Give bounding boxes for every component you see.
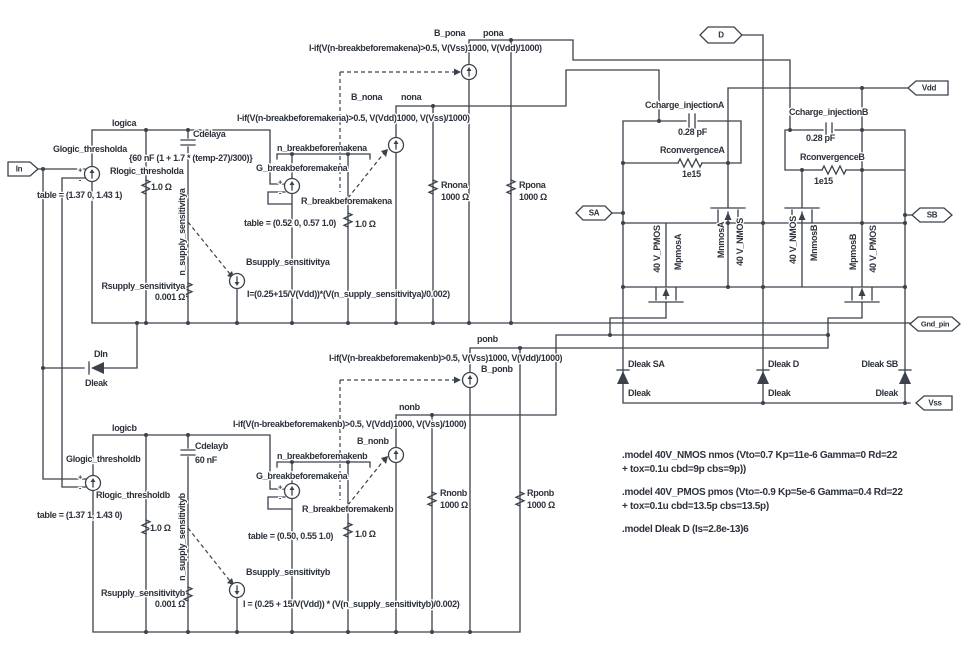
- bsupply-a-label: Bsupply_sensitivitya: [246, 257, 331, 267]
- dleak-d-model: Dleak: [768, 388, 792, 398]
- dleak-sa-label: Dleak SA: [628, 359, 665, 369]
- cdelay-b-label: Cdelayb: [195, 441, 229, 451]
- rbreak-a-label: R_breakbeforemakena: [301, 196, 393, 206]
- bsupply-a-formula: I=(0.25+15/V(Vdd))*(V(n_supply_sensitivi…: [247, 289, 450, 299]
- model-pmos-line1: .model 40V_PMOS pmos (Vto=-0.9 Kp=5e-6 G…: [622, 487, 903, 498]
- schematic-page: In D Vdd SA SB Gnd_pin Vss logica Glogic…: [0, 0, 962, 651]
- rbreak-a-value: 1.0 Ω: [355, 219, 376, 229]
- din-model: Dleak: [85, 378, 109, 388]
- bpon-a-formula: I-if(V(n-breakbeforemakena)>0.5, V(Vss)1…: [309, 43, 542, 53]
- port-sa-label: SA: [589, 209, 600, 218]
- rpon-a-value: 1000 Ω: [519, 192, 547, 202]
- dleak-sa-model: Dleak: [628, 388, 652, 398]
- mnmos-b-name: MnmosB: [809, 224, 819, 261]
- rconv-b-label: RconvergenceB: [800, 152, 865, 162]
- ccharge-a-value: 0.28 pF: [678, 127, 708, 137]
- ccharge-b-label: Ccharge_injectionB: [789, 107, 869, 117]
- bpon-b-label: B_ponb: [481, 364, 513, 374]
- bnon-b-formula: I-if(V(n-breakbeforemakenb)>0.5, V(Vdd)1…: [233, 419, 467, 429]
- cdelay-a-value: {60 nF (1 + 1.7 * (temp-27)/300)}: [129, 153, 253, 163]
- rnon-b-value: 1000 Ω: [440, 500, 468, 510]
- ccharge-a-label: Ccharge_injectionA: [645, 100, 725, 110]
- gbreak-b-label: G_breakbeforemakena: [256, 471, 349, 481]
- mnmos-a-name: MnmosA: [716, 221, 726, 258]
- bnon-a-label: B_nona: [351, 92, 383, 102]
- net-nsupply-a: n_supply_sensitivitya: [177, 187, 187, 276]
- wire-network: [38, 35, 912, 632]
- net-pona: pona: [483, 28, 505, 38]
- rbreak-b-value: 1.0 Ω: [355, 529, 376, 539]
- bsupply-b-formula: I = (0.25 + 15/V(Vdd)) * (V(n_supply_sen…: [243, 599, 460, 609]
- gbreak-a-table: table = (0.52 0, 0.57 1.0): [244, 218, 336, 228]
- rpon-b-label: Rponb: [527, 488, 555, 498]
- gbreak-a-minus: -: [279, 189, 282, 198]
- rconv-a-value: 1e15: [682, 169, 701, 179]
- rsupply-b-value: 0.001 Ω: [155, 599, 185, 609]
- bnon-b-label: B_nonb: [357, 436, 389, 446]
- glogic-b-label: Glogic_thresholdb: [66, 454, 141, 464]
- model-nmos-line1: .model 40V_NMOS nmos (Vto=0.7 Kp=11e-6 G…: [622, 450, 898, 461]
- rsupply-a-label: Rsupply_sensitivitya: [101, 281, 186, 291]
- gbreak-b-plus: +: [278, 483, 283, 492]
- glogic-b-plus: +: [78, 473, 83, 482]
- rconv-a-label: RconvergenceA: [660, 145, 725, 155]
- glogic-a-label: Glogic_thresholda: [53, 144, 128, 154]
- mnmos-a-model: 40 V_NMOS: [735, 218, 745, 266]
- bpon-a-label: B_pona: [434, 28, 466, 38]
- model-dleak-line: .model Dleak D (Is=2.8e-13)6: [622, 524, 749, 535]
- rnon-a-label: Rnona: [441, 180, 469, 190]
- net-nonb: nonb: [399, 402, 421, 412]
- net-nsupply-b: n_supply_sensitivityb: [177, 492, 187, 581]
- glogic-a-plus: +: [78, 166, 83, 175]
- bsupply-b-label: Bsupply_sensitivityb: [246, 567, 331, 577]
- rconv-b-value: 1e15: [814, 176, 833, 186]
- rlogic-b-label: Rlogic_thresholdb: [96, 490, 171, 500]
- net-ponb: ponb: [477, 334, 499, 344]
- din-label: DIn: [94, 349, 108, 359]
- model-nmos-line2: + tox=0.1u cbd=9p cbs=9p)): [622, 464, 746, 475]
- rnon-b-label: Rnonb: [440, 488, 468, 498]
- port-in: [8, 162, 38, 176]
- rbreak-b-label: R_breakbeforemakenb: [302, 504, 394, 514]
- mpmos-a-model: 40 V_PMOS: [652, 225, 662, 273]
- port-gnd-label: Gnd_pin: [921, 320, 950, 329]
- junction-dots: [41, 38, 907, 634]
- gbreak-b-minus: -: [279, 494, 282, 503]
- mpmos-a-name: MpmosA: [673, 233, 683, 270]
- rpon-b-value: 1000 Ω: [527, 500, 555, 510]
- circuit-canvas: In D Vdd SA SB Gnd_pin Vss logica Glogic…: [0, 0, 962, 651]
- port-vdd-label: Vdd: [922, 84, 937, 93]
- gbreak-a-plus: +: [278, 178, 283, 187]
- ccharge-b-value: 0.28 pF: [806, 133, 836, 143]
- rsupply-b-label: Rsupply_sensitivityb: [101, 588, 186, 598]
- net-logicb: logicb: [112, 423, 138, 433]
- net-logica: logica: [112, 118, 138, 128]
- rpon-a-label: Rpona: [519, 180, 547, 190]
- dleak-sb-label: Dleak SB: [861, 359, 898, 369]
- bnon-a-formula: I-if(V(n-breakbeforemakena)>0.5, V(Vdd)1…: [237, 113, 470, 123]
- rnon-a-value: 1000 Ω: [441, 192, 469, 202]
- mpmos-b-name: MpmosB: [848, 233, 858, 270]
- gbreak-b-table: table = (0.50, 0.55 1.0): [248, 531, 333, 541]
- gbreak-a-label: G_breakbeforemakena: [256, 163, 349, 173]
- net-nbreak-a: n_breakbeforemakena: [277, 143, 368, 153]
- net-nona: nona: [401, 92, 423, 102]
- glogic-b-minus: -: [79, 484, 82, 493]
- cdelay-b-value: 60 nF: [195, 455, 218, 465]
- dleak-sb-model: Dleak: [875, 388, 899, 398]
- glogic-a-table: table = (1.37 0, 1.43 1): [37, 190, 122, 200]
- model-pmos-line2: + tox=0.1u cbd=13.5p cbs=13.5p): [622, 501, 769, 512]
- glogic-a-minus: -: [79, 176, 82, 185]
- port-in-label: In: [16, 165, 23, 174]
- rlogic-a-label: Rlogic_thresholda: [110, 166, 185, 176]
- port-sb-label: SB: [927, 211, 938, 220]
- net-nbreak-b: n_breakbeforemakenb: [277, 451, 368, 461]
- dleak-d-label: Dleak D: [768, 359, 800, 369]
- rsupply-a-value: 0.001 Ω: [155, 292, 185, 302]
- rlogic-a-value: 1.0 Ω: [151, 182, 172, 192]
- rlogic-b-value: 1.0 Ω: [150, 523, 171, 533]
- cdelay-a-label: Cdelaya: [193, 129, 227, 139]
- glogic-b-table: table = (1.37 1, 1.43 0): [37, 510, 122, 520]
- port-vss-label: Vss: [928, 399, 942, 408]
- mpmos-b-model: 40 V_PMOS: [868, 225, 878, 273]
- port-d-label: D: [718, 31, 724, 40]
- mnmos-b-model: 40 V_NMOS: [788, 216, 798, 264]
- bpon-b-formula: I-if(V(n-breakbeforemakenb)>0.5, V(Vss)1…: [329, 353, 563, 363]
